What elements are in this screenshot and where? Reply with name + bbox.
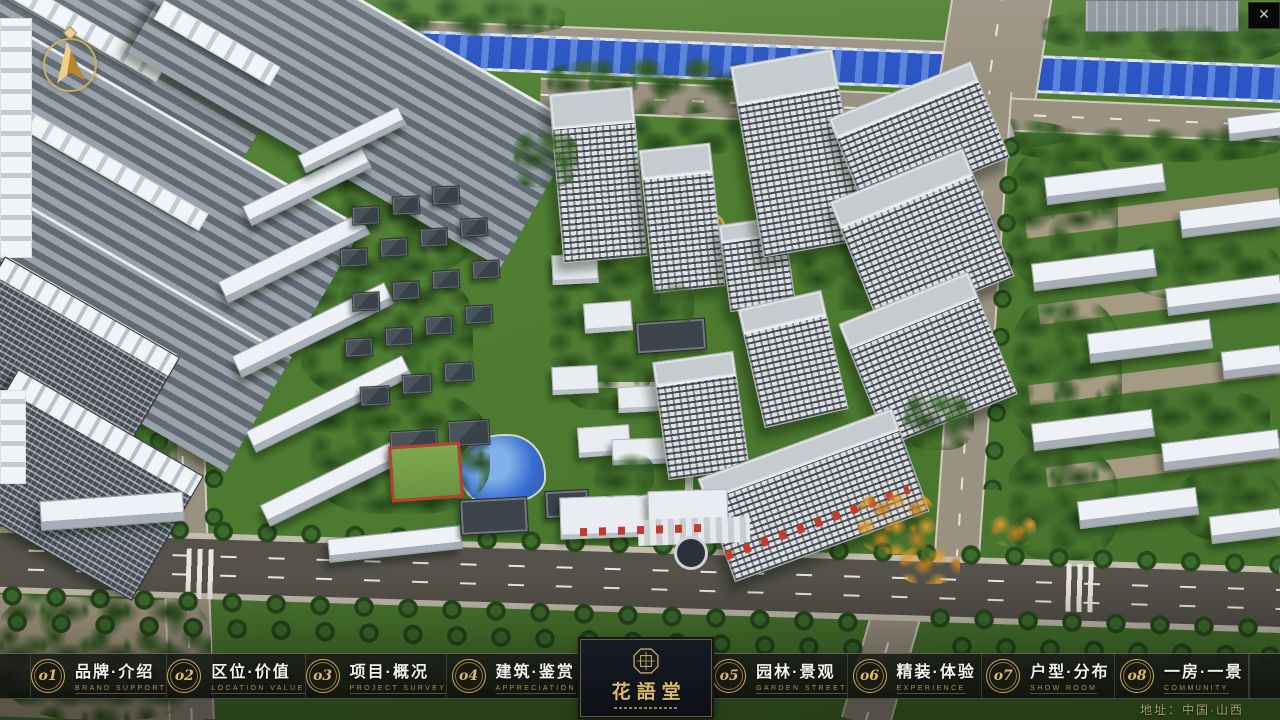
project-logo[interactable]: 花語堂 [580,639,712,717]
nav-title: 一房·一景 [1164,658,1243,682]
project-address: 地址：中国·山西 [1140,701,1244,718]
nav-item-interior[interactable]: o6 精装·体验 EXPERIENCE [848,654,982,698]
nav-item-architecture[interactable]: o4 建筑·鉴赏 APPRECIATION [447,654,580,698]
midrise-block [617,385,660,413]
masterplan-3d-view[interactable] [0,0,1280,720]
nav-item-brand[interactable]: o1 品牌·介绍 BRAND SUPPORT [31,654,167,698]
nav-subtitle: EXPERIENCE [897,685,966,694]
midrise-block [551,365,598,395]
tree-cluster [592,452,654,498]
nav-item-floorplans[interactable]: o7 户型·分布 SHOW ROOM [982,654,1116,698]
logo-subtext-line [614,707,678,709]
nav-title: 户型·分布 [1030,658,1109,682]
nav-item-views[interactable]: o8 一房·一景 COMMUNITY [1115,654,1249,698]
courtyard-house [385,326,414,346]
chinese-roof-hall [459,496,529,536]
nav-spacer [1249,654,1280,698]
nav-number: o7 [994,668,1013,684]
nav-number-badge: o1 [31,659,65,693]
courtyard-house [420,227,449,247]
nav-item-project[interactable]: o3 项目·概况 PROJECT SURVEY [306,654,448,698]
courtyard-house [352,205,381,225]
nav-labels: 园林·景观 GARDEN STREET [756,658,847,694]
courtyard-house [392,195,421,215]
nav-number-badge: o4 [452,659,486,693]
nav-number: o5 [720,668,739,684]
nav-subtitle: LOCATION VALUE [211,685,304,694]
nav-labels: 项目·概况 PROJECT SURVEY [350,658,447,694]
nav-title: 园林·景观 [756,658,835,682]
nav-subtitle: BRAND SUPPORT [75,685,166,694]
courtyard-house [352,291,381,311]
nav-number-badge: o6 [853,659,887,693]
courtyard-house [425,315,454,335]
nav-number: o2 [175,668,194,684]
midrise-block [583,300,633,333]
courtyard-house [380,237,409,257]
logo-title: 花語堂 [606,677,687,704]
nav-subtitle: COMMUNITY [1164,685,1229,694]
nav-labels: 精装·体验 EXPERIENCE [897,658,976,694]
nav-subtitle: APPRECIATION [496,685,576,694]
nav-number-badge: o8 [1120,659,1154,693]
tree-cluster [512,130,578,188]
autumn-trees [990,514,1036,546]
nav-number: o3 [313,668,332,684]
courtyard-house [392,280,421,300]
main-nav: o1 品牌·介绍 BRAND SUPPORT o2 区位·价值 LOCATION… [0,653,1280,699]
nav-number: o1 [38,668,57,684]
nav-title: 品牌·介绍 [75,658,154,682]
rooftop-parapet [0,18,32,258]
nav-labels: 一房·一景 COMMUNITY [1164,658,1243,694]
seal-icon [633,648,659,674]
courtyard-house [340,247,369,267]
nav-title: 建筑·鉴赏 [496,658,575,682]
nav-number: o6 [860,668,879,684]
close-button[interactable]: ✕ [1248,2,1280,29]
plaza-circle [674,536,708,570]
nav-item-location[interactable]: o2 区位·价值 LOCATION VALUE [167,654,305,698]
tree-cluster [638,282,694,328]
nav-title: 区位·价值 [211,658,290,682]
courtyard-house [460,217,489,237]
nav-labels: 户型·分布 SHOW ROOM [1030,658,1109,694]
nav-labels: 建筑·鉴赏 APPRECIATION [496,658,576,694]
nav-subtitle: SHOW ROOM [1030,685,1097,694]
courtyard-house [465,304,494,324]
tree-cluster [1148,24,1280,62]
school-building [388,442,464,503]
tree-cluster [902,392,974,450]
nav-spacer [0,654,31,698]
autumn-trees [856,490,936,554]
residential-tower [737,290,848,428]
nav-labels: 品牌·介绍 BRAND SUPPORT [75,658,166,694]
courtyard-house [359,385,390,407]
courtyard-house [432,269,461,289]
courtyard-house [432,185,461,205]
courtyard-house [443,361,474,383]
nav-labels: 区位·价值 LOCATION VALUE [211,658,304,694]
nav-number: o8 [1127,668,1146,684]
sales-kiosk-window: ✕ o1 品牌·介绍 BRAND SUPPORT o2 区位·价值 LOCATI… [0,0,1280,720]
courtyard-house [345,337,374,357]
residential-tower [652,351,750,480]
nav-number-badge: o3 [306,659,340,693]
nav-title: 精装·体验 [897,658,976,682]
nav-title: 项目·概况 [350,658,429,682]
autumn-trees [898,546,960,584]
residential-tower [639,143,726,294]
nav-number-badge: o2 [167,659,201,693]
nav-item-garden[interactable]: o5 园林·景观 GARDEN STREET [712,654,848,698]
nav-number: o4 [459,668,478,684]
nav-subtitle: GARDEN STREET [756,685,847,694]
courtyard-house [472,259,501,279]
courtyard-house [401,373,432,395]
compass [40,28,98,94]
rooftop-parapet [0,390,26,484]
nav-number-badge: o7 [986,659,1020,693]
nav-subtitle: PROJECT SURVEY [350,685,447,694]
nav-number-badge: o5 [712,659,746,693]
